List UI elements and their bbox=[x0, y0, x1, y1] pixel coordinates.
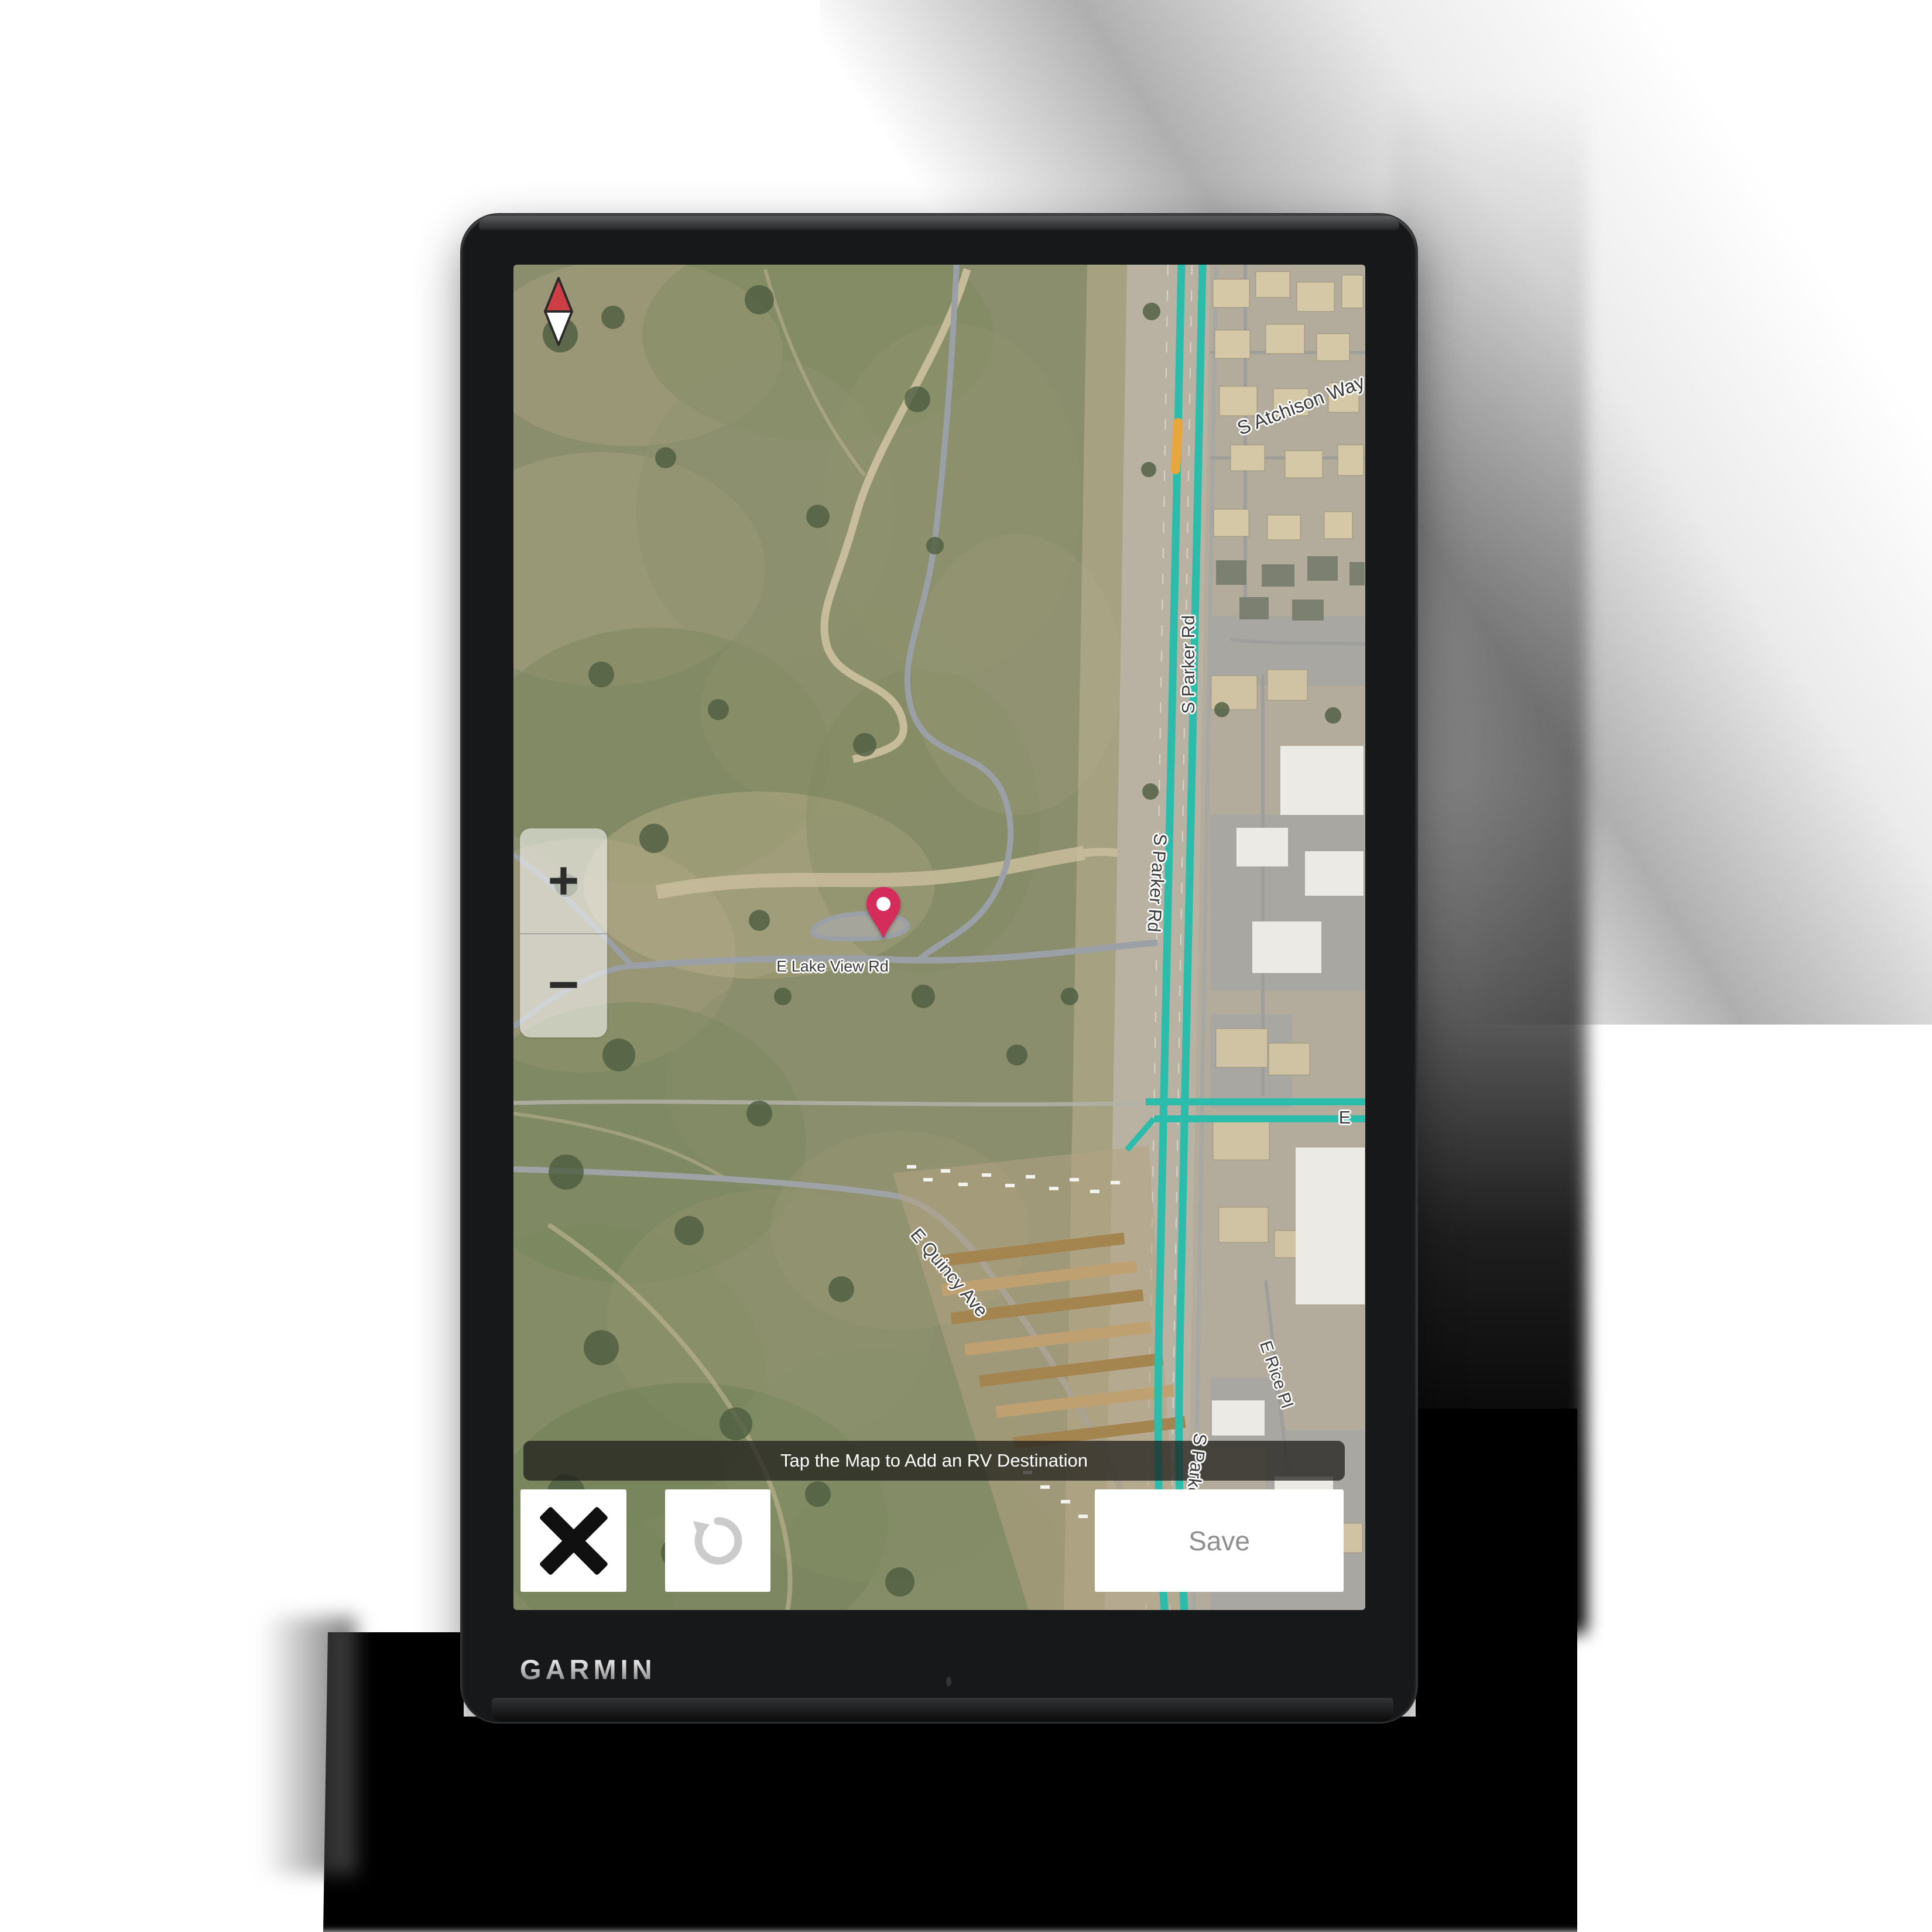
background-right-shadow bbox=[1393, 88, 1587, 1633]
device-bottom-lip bbox=[492, 1698, 1393, 1721]
microphone-dot bbox=[946, 1677, 951, 1686]
road-label-lake-view: E Lake View Rd bbox=[776, 958, 889, 976]
undo-button[interactable] bbox=[665, 1489, 770, 1592]
satellite-map[interactable] bbox=[513, 265, 1365, 1610]
location-pin-icon bbox=[863, 886, 904, 941]
close-icon bbox=[520, 1489, 626, 1592]
compass-icon[interactable] bbox=[543, 276, 574, 347]
zoom-in-button[interactable]: + bbox=[520, 828, 607, 933]
zoom-out-button[interactable]: − bbox=[520, 933, 607, 1038]
garmin-logo: GARMIN bbox=[520, 1653, 696, 1680]
cancel-button[interactable] bbox=[520, 1489, 626, 1592]
undo-icon bbox=[688, 1512, 747, 1570]
traffic-slow-segment bbox=[1176, 423, 1178, 470]
road-label-parker-upper: S Parker Rd bbox=[1178, 615, 1199, 714]
map-screen[interactable]: E Lake View Rd S Parker Rd S Parker Rd S… bbox=[513, 265, 1365, 1610]
device-top-edge bbox=[479, 216, 1399, 230]
save-button[interactable]: Save bbox=[1095, 1489, 1344, 1592]
instruction-banner: Tap the Map to Add an RV Destination bbox=[523, 1441, 1345, 1481]
zoom-panel: + − bbox=[520, 828, 607, 1037]
road-label-east-partial: E bbox=[1339, 1107, 1351, 1128]
background-left-shadow bbox=[262, 1617, 356, 1875]
